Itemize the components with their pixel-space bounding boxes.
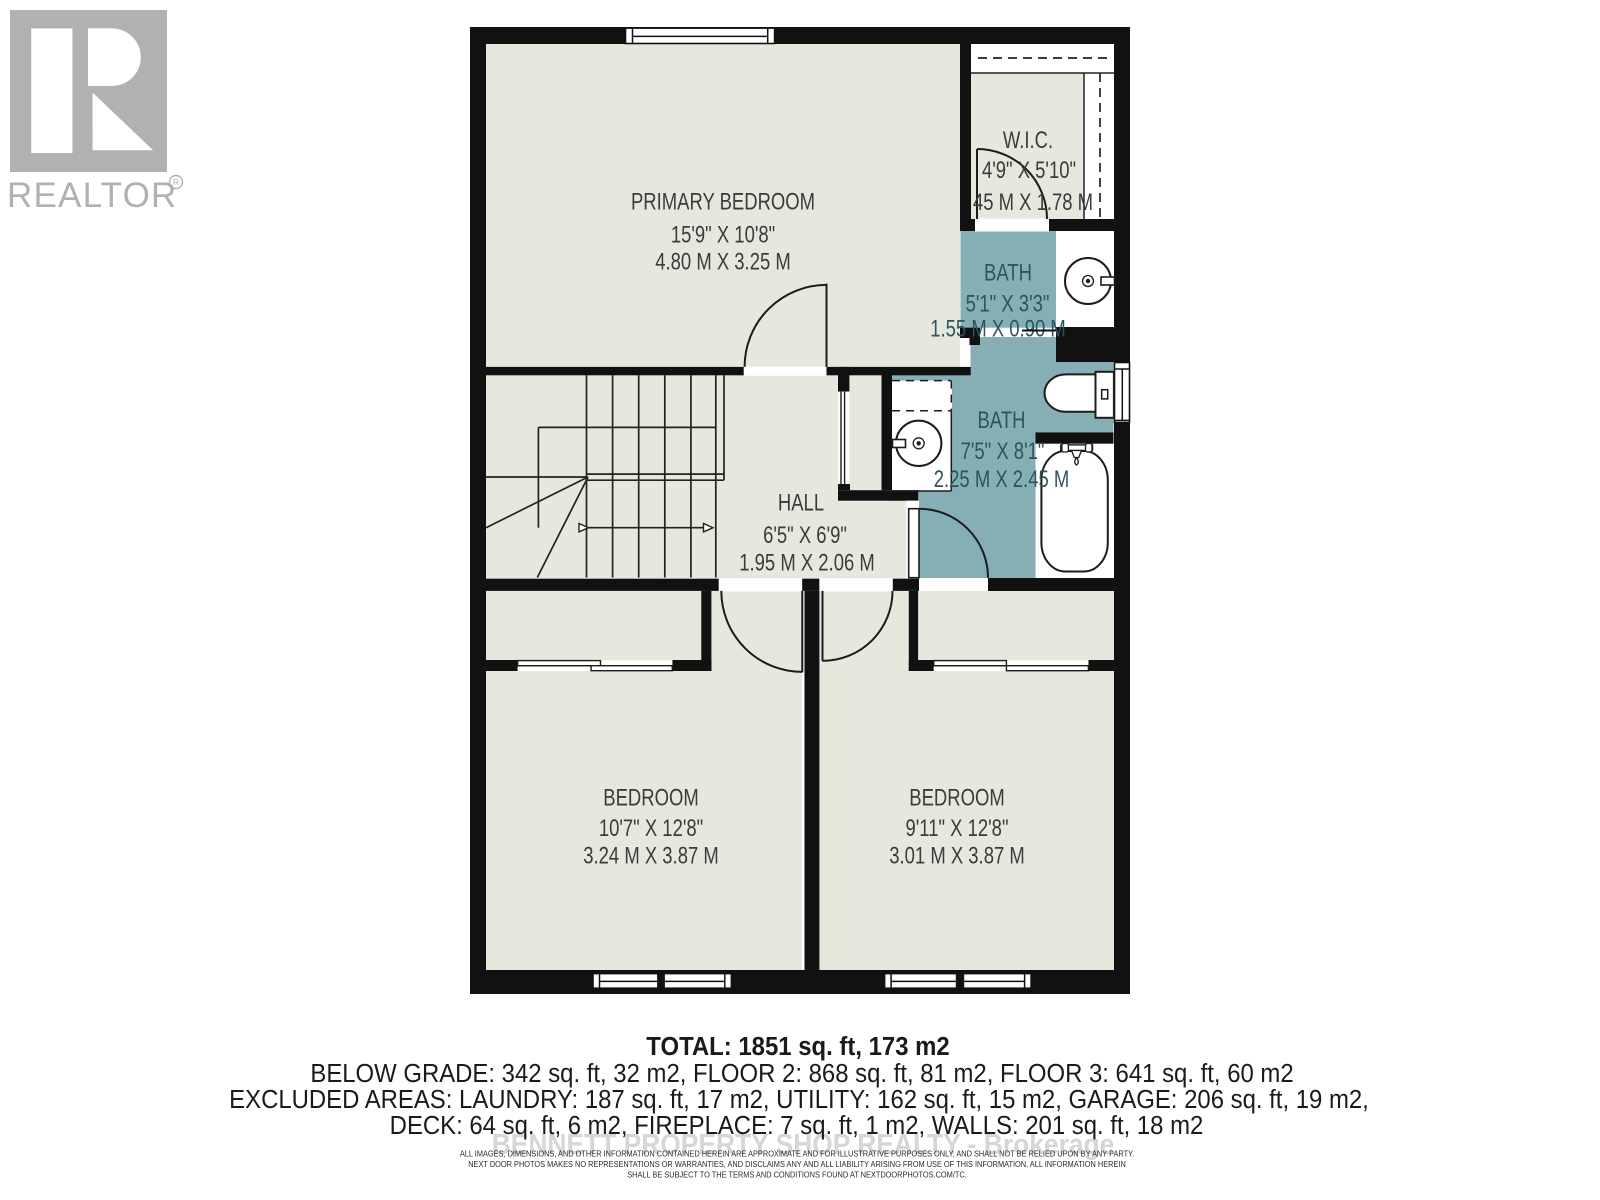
svg-text:ALL IMAGES, DIMENSIONS, AND OT: ALL IMAGES, DIMENSIONS, AND OTHER INFORM…	[460, 1149, 1134, 1159]
svg-text:DECK: 64 sq. ft, 6 m2, FIREPLA: DECK: 64 sq. ft, 6 m2, FIREPLACE: 7 sq. …	[390, 1111, 1204, 1140]
svg-text:4.80 M X 3.25 M: 4.80 M X 3.25 M	[655, 248, 791, 275]
svg-text:REALTOR: REALTOR	[7, 176, 177, 215]
svg-text:BELOW GRADE: 342 sq. ft, 32 m2: BELOW GRADE: 342 sq. ft, 32 m2, FLOOR 2:…	[310, 1059, 1293, 1088]
svg-text:BEDROOM: BEDROOM	[909, 784, 1004, 811]
svg-text:3.24 M X 3.87 M: 3.24 M X 3.87 M	[583, 842, 719, 869]
svg-text:45 M X 1.78 M: 45 M X 1.78 M	[973, 189, 1093, 216]
svg-text:BATH: BATH	[978, 407, 1026, 434]
svg-text:HALL: HALL	[778, 489, 824, 516]
svg-text:W.I.C.: W.I.C.	[1003, 127, 1053, 154]
svg-text:1.95 M X 2.06 M: 1.95 M X 2.06 M	[739, 549, 875, 576]
svg-text:3.01 M X 3.87 M: 3.01 M X 3.87 M	[889, 842, 1025, 869]
svg-text:15'9" X 10'8": 15'9" X 10'8"	[671, 221, 775, 248]
svg-text:4'9" X 5'10": 4'9" X 5'10"	[982, 157, 1076, 184]
svg-text:R: R	[173, 177, 179, 187]
svg-text:NEXT DOOR PHOTOS MAKES NO REPR: NEXT DOOR PHOTOS MAKES NO REPRESENTATION…	[468, 1160, 1126, 1170]
svg-text:5'1" X 3'3": 5'1" X 3'3"	[966, 290, 1050, 317]
svg-text:SHALL BE SUBJECT TO THE TERMS: SHALL BE SUBJECT TO THE TERMS AND CONDIT…	[627, 1170, 967, 1180]
svg-text:BEDROOM: BEDROOM	[603, 784, 698, 811]
svg-text:7'5" X 8'1": 7'5" X 8'1"	[961, 438, 1045, 465]
svg-text:6'5" X 6'9": 6'5" X 6'9"	[763, 522, 847, 549]
svg-text:BATH: BATH	[984, 259, 1032, 286]
svg-text:PRIMARY BEDROOM: PRIMARY BEDROOM	[631, 188, 815, 215]
svg-text:9'11" X 12'8": 9'11" X 12'8"	[905, 815, 1008, 842]
svg-text:2.25 M X 2.45 M: 2.25 M X 2.45 M	[934, 466, 1070, 493]
svg-text:TOTAL: 1851 sq. ft, 173 m2: TOTAL: 1851 sq. ft, 173 m2	[646, 1032, 949, 1061]
svg-text:1.55 M X 0.90 M: 1.55 M X 0.90 M	[930, 315, 1066, 342]
svg-text:EXCLUDED AREAS: LAUNDRY: 187 s: EXCLUDED AREAS: LAUNDRY: 187 sq. ft, 17 …	[229, 1085, 1369, 1114]
svg-text:10'7" X 12'8": 10'7" X 12'8"	[599, 815, 703, 842]
